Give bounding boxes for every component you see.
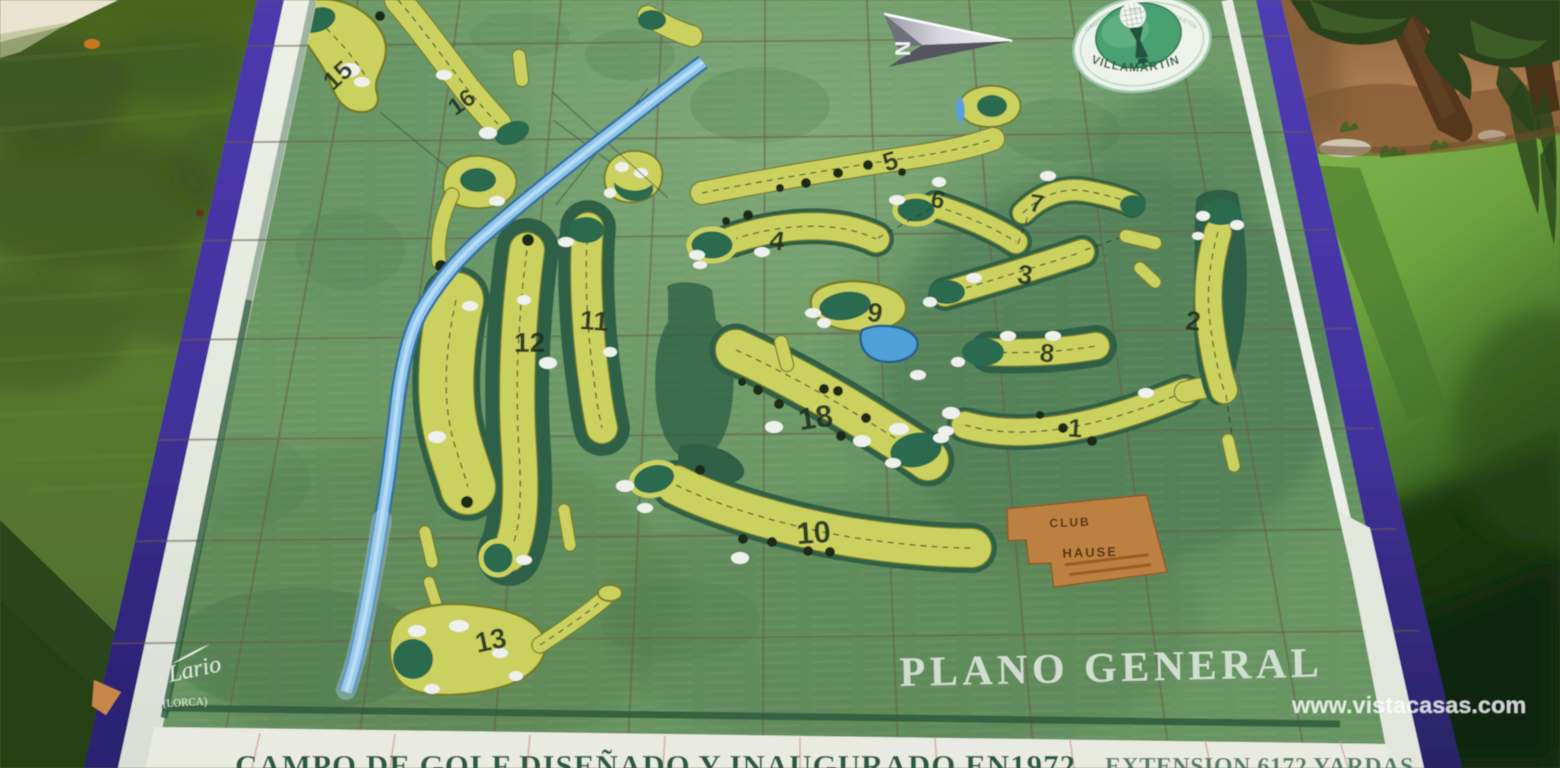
svg-text:N: N	[892, 41, 915, 56]
svg-text:2: 2	[1184, 305, 1202, 336]
svg-text:18: 18	[796, 398, 835, 437]
svg-text:13: 13	[472, 622, 509, 659]
svg-text:(LORCA): (LORCA)	[163, 696, 209, 710]
svg-text:PLANO GENERAL: PLANO GENERAL	[899, 640, 1324, 696]
svg-text:11: 11	[579, 305, 610, 337]
svg-text:www.vistacasas.com: www.vistacasas.com	[1291, 692, 1526, 718]
svg-text:CAMPO DE GOLF DISEÑADO Y INAUG: CAMPO DE GOLF DISEÑADO Y INAUGURADO EN19…	[235, 748, 1076, 768]
svg-text:12: 12	[514, 327, 545, 358]
svg-text:10: 10	[795, 514, 832, 551]
svg-text:HAUSE: HAUSE	[1062, 544, 1118, 561]
svg-text:1: 1	[1067, 413, 1084, 444]
svg-text:EXTENSION 6172 YARDAS: EXTENSION 6172 YARDAS	[1105, 754, 1414, 768]
svg-text:CLUB: CLUB	[1049, 515, 1091, 530]
